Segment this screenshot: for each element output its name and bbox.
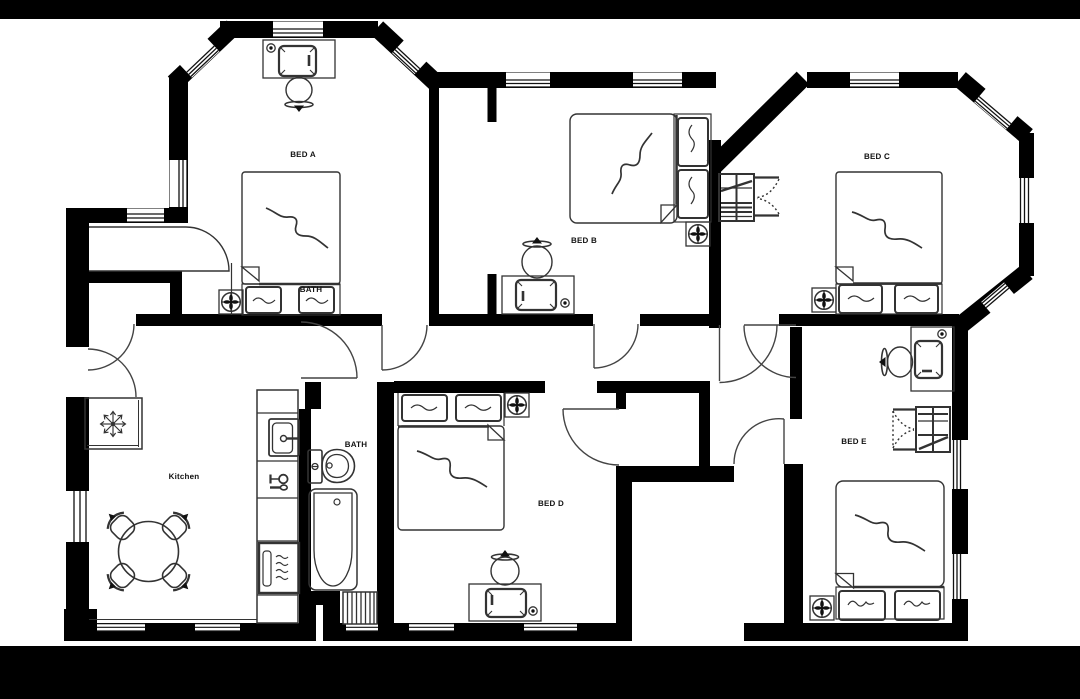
svg-text:BED B: BED B [571,236,597,245]
svg-text:BATH: BATH [300,285,322,294]
svg-text:BED D: BED D [538,499,564,508]
svg-text:BED C: BED C [864,152,890,161]
svg-text:Kitchen: Kitchen [169,472,200,481]
svg-text:BATH: BATH [345,440,367,449]
svg-text:BED A: BED A [290,150,316,159]
svg-text:BED E: BED E [841,437,867,446]
